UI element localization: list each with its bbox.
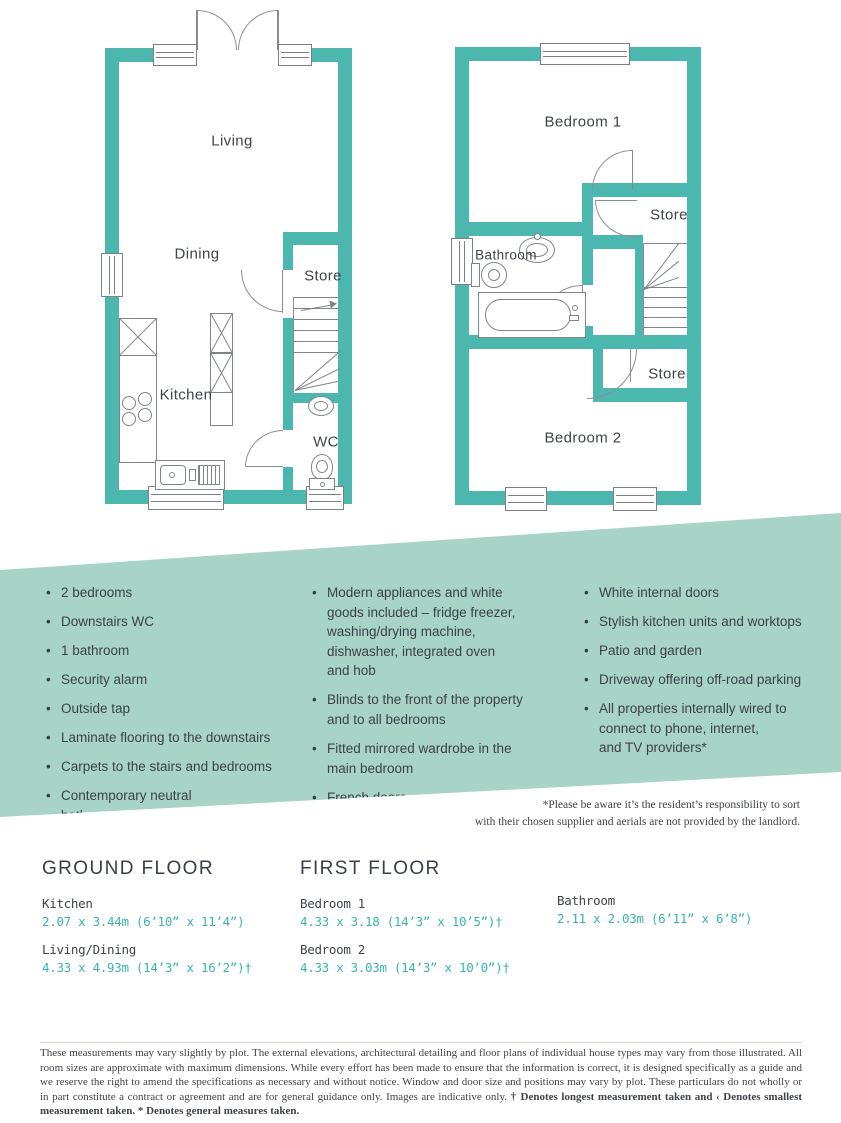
feature-item: Outside tap (61, 699, 296, 719)
measurement-row: Living/Dining 4.33 x 4.93m (14’3” x 16’2… (42, 941, 252, 976)
hob-ring (122, 412, 136, 426)
feature-item: Security alarm (61, 670, 296, 690)
bath-tub-inner (485, 299, 571, 331)
feature-item: Modern appliances and white goods includ… (327, 583, 572, 681)
wc-basin-bowl (314, 401, 328, 411)
measurement-room-dims: 2.07 x 3.44m (6’10” x 11’4”) (42, 913, 252, 931)
measurement-room-name: Bedroom 2 (300, 941, 510, 959)
feature-item: Patio and garden (599, 641, 834, 661)
wall (469, 222, 583, 236)
ground-floor-measurements: GROUND FLOOR Kitchen 2.07 x 3.44m (6’10”… (42, 858, 252, 987)
window (451, 238, 473, 285)
first-floor-plan: Bedroom 1 Store Bathroom Store Bedroom 2 (455, 47, 701, 505)
hob-ring (122, 396, 136, 410)
wall (635, 249, 643, 335)
bathroom-measurements: Bathroom 2.11 x 2.03m (6’11” x 6’8”) (557, 892, 752, 938)
feature-item: Fitted mirrored wardrobe in the main bed… (327, 739, 572, 778)
features-banner: 2 bedrooms Downstairs WC 1 bathroom Secu… (0, 505, 841, 820)
features-column-2: Modern appliances and white goods includ… (312, 583, 572, 817)
toilet-seat (316, 460, 328, 473)
room-label-bedroom2: Bedroom 2 (545, 430, 622, 447)
ground-floor-heading: GROUND FLOOR (42, 858, 252, 880)
feature-item: All properties internally wired to conne… (599, 699, 834, 758)
room-label-bathroom: Bathroom (475, 248, 537, 263)
door-swing-arc (245, 430, 283, 467)
feature-item: Laminate flooring to the downstairs (61, 728, 296, 748)
measurement-room-dims: 4.33 x 3.03m (14’3” x 10’0”)† (300, 959, 510, 977)
feature-item: Downstairs WC (61, 612, 296, 632)
measurement-row: Bedroom 2 4.33 x 3.03m (14’3” x 10’0”)† (300, 941, 510, 976)
feature-item: Driveway offering off-road parking (599, 670, 834, 690)
door-leaf (632, 150, 633, 190)
features-column-1: 2 bedrooms Downstairs WC 1 bathroom Secu… (46, 583, 296, 835)
room-label-wc: WC (313, 434, 339, 451)
feature-item: Carpets to the stairs and bedrooms (61, 757, 296, 777)
measurement-row: Bathroom 2.11 x 2.03m (6’11” x 6’8”) (557, 892, 752, 927)
feature-item: Stylish kitchen units and worktops (599, 612, 834, 632)
sink-drain (169, 472, 175, 478)
sink-tap (189, 469, 196, 481)
measurement-row: Bedroom 1 4.33 x 3.18 (14’3” x 10’5”)† (300, 895, 510, 930)
bath-tap (569, 315, 579, 321)
measurement-room-dims: 2.11 x 2.03m (6’11” x 6’8”) (557, 910, 752, 928)
hob-ring (138, 408, 152, 422)
first-floor-measurements: FIRST FLOOR Bedroom 1 4.33 x 3.18 (14’3”… (300, 858, 510, 987)
window (505, 487, 547, 511)
room-label-kitchen: Kitchen (160, 387, 213, 404)
wall (283, 467, 293, 504)
measurement-room-name: Bathroom (557, 892, 752, 910)
wall (593, 335, 687, 349)
kitchen-wall-unit (210, 313, 233, 353)
door-swing-arc (197, 10, 237, 50)
measurement-room-dims: 4.33 x 3.18 (14’3” x 10’5”)† (300, 913, 510, 931)
stairs-edge (293, 297, 294, 393)
wall (455, 491, 701, 505)
wall (582, 236, 593, 285)
window (540, 43, 630, 65)
aerials-footnote: *Please be aware it’s the resident’s res… (370, 797, 800, 832)
stairs-arrow-head (329, 299, 337, 308)
aerials-footnote-line2: with their chosen supplier and aerials a… (370, 814, 800, 831)
feature-item: Contemporary neutral bathroom suite (61, 786, 296, 825)
wall (283, 403, 293, 430)
wall (283, 318, 293, 393)
aerials-footnote-line1: *Please be aware it’s the resident’s res… (370, 797, 800, 814)
room-label-store-lower: Store (648, 366, 686, 383)
door-swing-arc (241, 270, 283, 312)
window (278, 44, 312, 66)
feature-item: Blinds to the front of the property and … (327, 690, 572, 729)
stairs-edge (643, 243, 687, 244)
window (101, 253, 123, 297)
divider-line (40, 1042, 802, 1043)
room-label-dining: Dining (175, 246, 220, 263)
door-swing-arc (595, 200, 637, 238)
basin-tap (534, 233, 541, 240)
wall (687, 47, 701, 505)
room-label-bedroom1: Bedroom 1 (545, 114, 622, 131)
legal-disclaimer: These measurements may vary slightly by … (40, 1046, 802, 1119)
sink-drainer (198, 465, 220, 485)
room-label-store: Store (304, 268, 342, 285)
room-label-living: Living (211, 133, 253, 150)
wall (582, 183, 593, 236)
first-floor-heading: FIRST FLOOR (300, 858, 510, 880)
kitchen-wall-unit (210, 353, 233, 393)
window (613, 487, 657, 511)
door-swing-arc (238, 10, 278, 50)
wall (283, 232, 352, 245)
feature-item: White internal doors (599, 583, 834, 603)
hob-ring (138, 392, 152, 406)
wall (283, 245, 293, 270)
bath-tap (572, 305, 578, 311)
measurement-row: Kitchen 2.07 x 3.44m (6’10” x 11’4”) (42, 895, 252, 930)
measurement-room-dims: 4.33 x 4.93m (14’3” x 16’2”)† (42, 959, 252, 977)
features-column-3: White internal doors Stylish kitchen uni… (584, 583, 834, 767)
room-label-store-upper: Store (650, 207, 688, 224)
measurement-room-name: Living/Dining (42, 941, 252, 959)
kitchen-wall-unit (119, 318, 157, 356)
measurement-room-name: Bedroom 1 (300, 895, 510, 913)
ground-floor-plan: Living Dining Store Kitchen WC (105, 8, 353, 516)
toilet-seat (488, 269, 500, 281)
measurement-room-name: Kitchen (42, 895, 252, 913)
feature-item: 1 bathroom (61, 641, 296, 661)
door-swing-arc (592, 150, 632, 190)
feature-item: 2 bedrooms (61, 583, 296, 603)
stairs (643, 287, 687, 337)
window (153, 44, 197, 66)
toilet-button (320, 482, 325, 487)
toilet-cistern (471, 263, 480, 287)
brochure-page: Living Dining Store Kitchen WC (0, 0, 841, 1123)
